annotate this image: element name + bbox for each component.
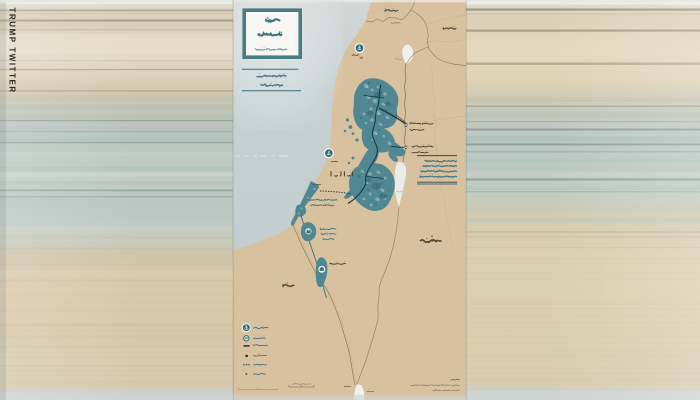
svg-text:TRUMP TWITTER: TRUMP TWITTER bbox=[8, 8, 17, 94]
